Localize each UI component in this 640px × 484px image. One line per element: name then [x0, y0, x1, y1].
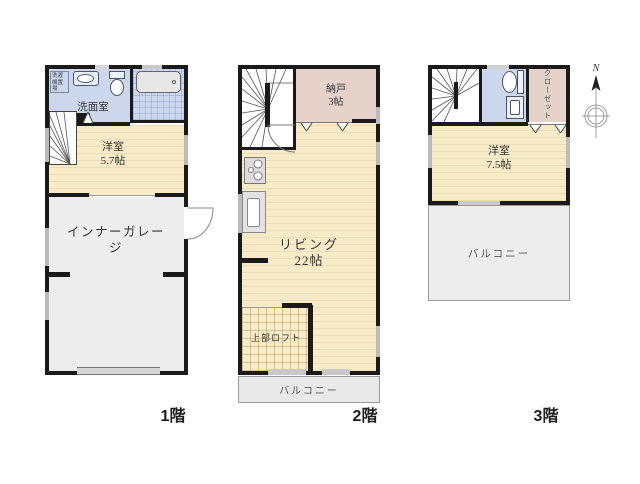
- folding-door-icon: [300, 123, 313, 131]
- toilet-icon: [107, 71, 127, 97]
- bedroom-name: 洋室: [74, 141, 152, 155]
- toilet-bowl: [110, 79, 124, 96]
- north-arrow-icon: [578, 74, 614, 142]
- kitchen-sink-icon: [242, 191, 266, 233]
- bathtub-icon: [136, 71, 181, 93]
- window-marker: [45, 228, 49, 266]
- toilet-tank-icon: [517, 70, 524, 94]
- bedroom-garage-wall-right: [155, 193, 184, 197]
- storage-name: 納戸: [306, 84, 366, 97]
- floor2-label: 2階: [341, 402, 389, 426]
- living-wall-stub: [242, 258, 268, 263]
- storage-label: 納戸 3帖: [306, 84, 366, 109]
- floor1-garage: [49, 197, 184, 371]
- closet-label: クローゼット: [542, 69, 553, 122]
- toilet-tank: [109, 71, 125, 79]
- laundry-label: 洗濯機置場: [52, 73, 63, 92]
- folding-door-icon: [529, 125, 542, 133]
- folding-door-icon: [336, 123, 349, 131]
- folding-door-icon: [554, 125, 567, 133]
- living-name: リビング: [268, 237, 350, 253]
- bedroom-size: 5.7帖: [74, 155, 152, 169]
- window-marker: [376, 326, 380, 357]
- window-marker: [376, 142, 380, 165]
- window-marker: [322, 369, 350, 375]
- floor2-balcony-label: バルコニー: [279, 382, 339, 397]
- floor1-bathroom: [130, 69, 184, 123]
- stairs-treads-icon: [50, 112, 76, 164]
- window-marker: [184, 135, 188, 165]
- living-label: リビング 22帖: [268, 237, 350, 270]
- entrance-door-arc-icon: [187, 204, 221, 242]
- garage-door: [77, 367, 160, 375]
- window-marker: [566, 137, 570, 168]
- floor1-label: 1階: [149, 402, 197, 426]
- window-marker: [142, 65, 162, 69]
- floor3-hall-wall: [432, 122, 528, 126]
- washroom-label: 洗面室: [63, 101, 123, 114]
- loft-label: 上部ロフト: [246, 333, 306, 344]
- garage-stub-left: [49, 272, 70, 277]
- window-marker: [268, 369, 306, 375]
- sink-basin: [247, 198, 260, 227]
- bedroom-name: 洋室: [462, 145, 536, 159]
- washbasin-icon: [73, 71, 99, 86]
- bedroom-size: 7.5帖: [462, 159, 536, 173]
- stove-icon: [244, 157, 266, 184]
- washbasin-bowl: [77, 74, 94, 83]
- window-marker: [45, 128, 49, 162]
- floor3-stairs: [432, 69, 482, 125]
- floor3-balcony-label: バルコニー: [468, 246, 530, 261]
- toilet-bowl-icon: [502, 71, 517, 93]
- window-marker: [95, 65, 109, 69]
- floor1-bedroom-label: 洋室 5.7帖: [74, 141, 152, 169]
- garage-label: インナーガレージ: [61, 225, 171, 256]
- toilet-washbasin-icon: [506, 96, 524, 119]
- loft-right-wall: [308, 305, 313, 371]
- floor2-outline: 納戸 3帖 リビング 22帖 上部ロフト: [238, 65, 380, 375]
- storage-wall-seg: [352, 119, 376, 123]
- garage-stub-right: [163, 272, 184, 277]
- window-marker: [238, 194, 242, 233]
- bathtub-drain-icon: [172, 80, 176, 84]
- basin-inner: [510, 100, 520, 115]
- north-label: N: [578, 63, 614, 74]
- floor3-label: 3階: [522, 402, 570, 426]
- floor1-outline: 洗濯機置場 洗面室 洋室 5.7帖 インナーガレージ: [45, 65, 188, 375]
- stair-door-arc-icon: [266, 123, 297, 154]
- floor1-stairs: [49, 111, 77, 165]
- floor3-balcony: バルコニー: [428, 205, 570, 301]
- laundry-space: 洗濯機置場: [50, 71, 69, 93]
- window-marker: [45, 292, 49, 320]
- bedroom-garage-opening: [89, 195, 155, 196]
- floor2-balcony: バルコニー: [238, 376, 380, 403]
- window-marker: [487, 65, 509, 69]
- floor3-bedroom-label: 洋室 7.5帖: [462, 145, 536, 173]
- floor-plan: 洗濯機置場 洗面室 洋室 5.7帖 インナーガレージ: [0, 0, 640, 484]
- window-marker: [376, 107, 380, 124]
- storage-size: 3帖: [306, 97, 366, 110]
- bedroom-garage-wall-left: [49, 193, 89, 197]
- window-marker: [428, 135, 432, 168]
- living-size: 22帖: [268, 253, 350, 269]
- compass: N: [578, 63, 614, 143]
- floor3-closet: クローゼット: [526, 69, 566, 122]
- stairs-treads-icon: [432, 69, 479, 122]
- floor3-outline: クローゼット: [428, 65, 570, 205]
